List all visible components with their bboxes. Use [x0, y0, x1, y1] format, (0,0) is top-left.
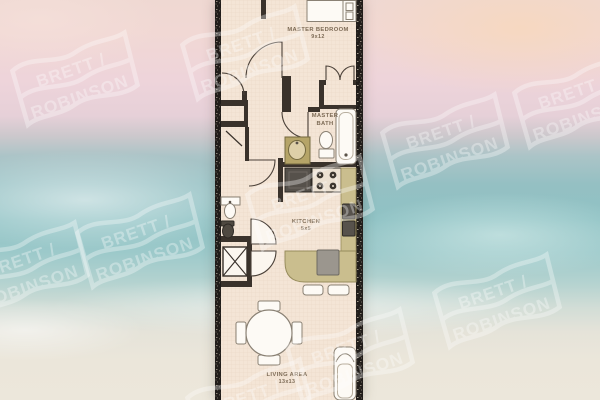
room-label-living-area: LIVING AREA 13x13: [245, 371, 329, 387]
scene: MASTER BEDROOM 9x12 MASTER BATH KITCHEN …: [0, 0, 600, 400]
master-bath-vanity-sink: [285, 137, 310, 164]
floorplan: [215, 0, 363, 400]
kitchen-appliance: [285, 168, 311, 192]
master-bedroom-name: MASTER BEDROOM: [268, 26, 368, 34]
master-bath-toilet: [319, 132, 334, 159]
master-bedroom-dims: 9x12: [268, 34, 368, 42]
kitchen-dims: 5x5: [276, 226, 336, 234]
room-label-kitchen: KITCHEN 5x5: [276, 218, 336, 234]
stove: [312, 168, 341, 192]
room-label-master-bath: MASTER BATH: [307, 112, 343, 129]
master-bath-name: MASTER BATH: [307, 112, 343, 129]
island-sink: [317, 250, 339, 275]
bed: [307, 1, 356, 22]
room-label-master-bedroom: MASTER BEDROOM 9x12: [268, 26, 368, 42]
kitchen-name: KITCHEN: [276, 218, 336, 226]
living-area-name: LIVING AREA: [245, 371, 329, 379]
sofa: [334, 347, 356, 400]
washer-dryer-closet: [223, 247, 247, 276]
living-area-dims: 13x13: [245, 379, 329, 387]
